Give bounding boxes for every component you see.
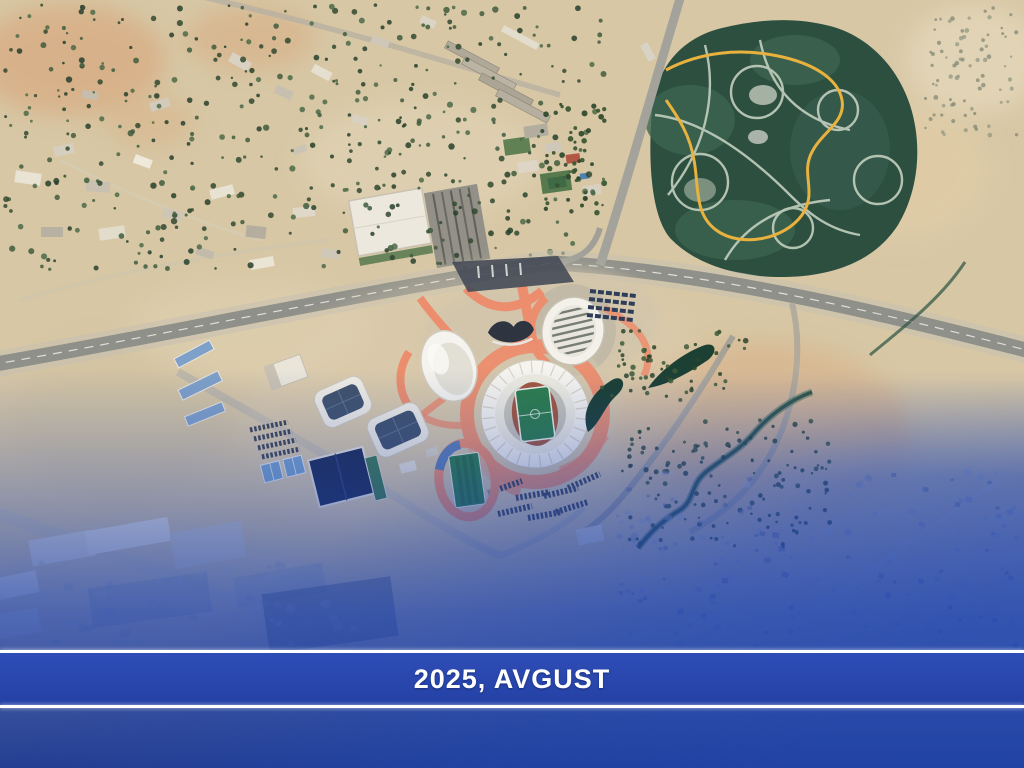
banner-line-bottom — [0, 705, 1024, 708]
slide-frame: 2025, AVGUST — [0, 0, 1024, 768]
caption-banner: 2025, AVGUST — [0, 650, 1024, 708]
caption-text: 2025, AVGUST — [414, 664, 611, 695]
banner-body: 2025, AVGUST — [0, 653, 1024, 705]
